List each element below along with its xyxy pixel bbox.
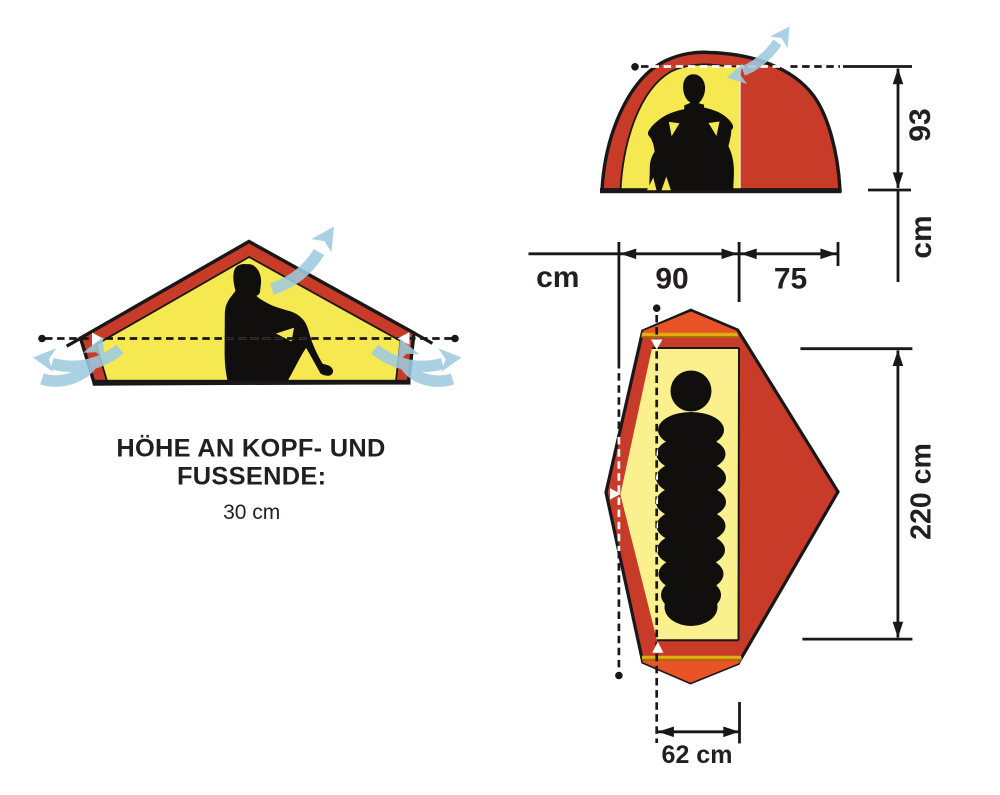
svg-text:62 cm: 62 cm	[662, 741, 733, 769]
svg-text:93: 93	[904, 108, 937, 141]
svg-text:75: 75	[774, 262, 807, 295]
svg-text:FUSSENDE:: FUSSENDE:	[177, 462, 326, 490]
svg-text:220 cm: 220 cm	[906, 443, 938, 540]
svg-text:90: 90	[655, 262, 688, 295]
svg-text:30 cm: 30 cm	[223, 501, 280, 524]
svg-text:cm: cm	[536, 261, 579, 294]
svg-text:HÖHE AN KOPF- UND: HÖHE AN KOPF- UND	[116, 433, 385, 462]
svg-text:cm: cm	[905, 215, 938, 258]
